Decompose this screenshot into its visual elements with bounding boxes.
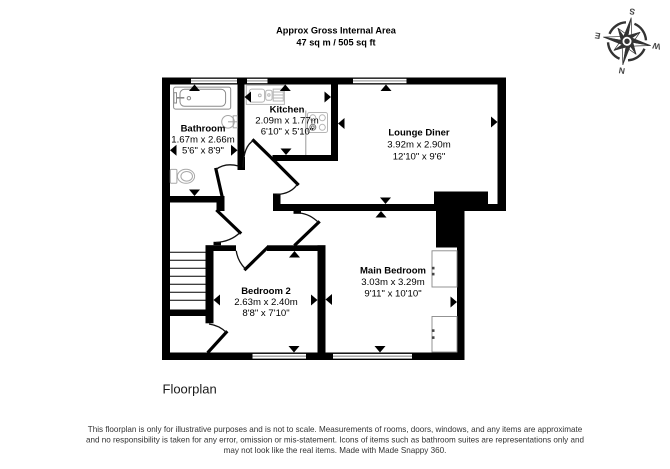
svg-text:47 sq m / 505 sq ft: 47 sq m / 505 sq ft: [296, 37, 375, 47]
svg-text:This floorplan is only for ill: This floorplan is only for illustrative …: [88, 425, 583, 434]
svg-text:S: S: [628, 6, 636, 17]
svg-text:12'10" x 9'6": 12'10" x 9'6": [393, 152, 446, 163]
svg-text:and no responsibility is taken: and no responsibility is taken for any e…: [86, 436, 584, 445]
svg-text:Bedroom 2: Bedroom 2: [241, 286, 291, 297]
svg-text:Approx Gross Internal Area: Approx Gross Internal Area: [276, 26, 397, 36]
svg-text:Floorplan: Floorplan: [163, 382, 217, 397]
svg-text:3.03m x 3.29m: 3.03m x 3.29m: [361, 277, 424, 288]
svg-text:9'11" x 10'10": 9'11" x 10'10": [364, 289, 421, 300]
svg-text:8'8" x 7'10": 8'8" x 7'10": [242, 308, 289, 319]
svg-text:1.67m x 2.66m: 1.67m x 2.66m: [171, 135, 234, 146]
svg-text:5'6" x 8'9": 5'6" x 8'9": [182, 146, 224, 157]
svg-text:E: E: [594, 30, 602, 41]
svg-text:may not look like the real ite: may not look like the real items. Made w…: [224, 446, 447, 455]
svg-text:W: W: [651, 41, 662, 52]
svg-text:6'10" x 5'10": 6'10" x 5'10": [261, 127, 314, 138]
svg-text:Kitchen: Kitchen: [270, 105, 305, 116]
svg-text:3.92m x 2.90m: 3.92m x 2.90m: [387, 140, 450, 151]
svg-text:N: N: [618, 65, 626, 76]
svg-text:Lounge Diner: Lounge Diner: [388, 128, 450, 139]
svg-text:2.63m x 2.40m: 2.63m x 2.40m: [234, 297, 297, 308]
svg-text:2.09m x 1.77m: 2.09m x 1.77m: [255, 116, 318, 127]
svg-text:Bathroom: Bathroom: [181, 124, 226, 135]
svg-text:Main Bedroom: Main Bedroom: [360, 266, 426, 277]
